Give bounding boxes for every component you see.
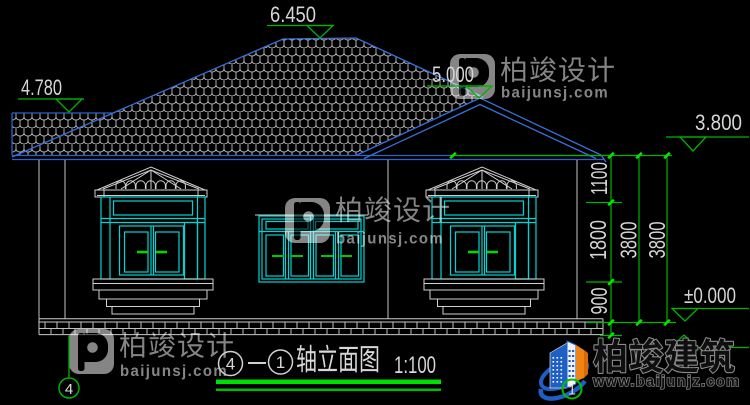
svg-text:±0.000: ±0.000 [684,283,736,308]
svg-text:6.450: 6.450 [270,2,316,27]
svg-text:4.780: 4.780 [21,75,62,100]
svg-text:3.800: 3.800 [695,110,742,135]
svg-text:1: 1 [568,382,576,398]
svg-text:3800: 3800 [616,222,642,259]
svg-text:baijunsj.com: baijunsj.com [336,231,444,248]
svg-text:1100: 1100 [586,162,612,195]
svg-text:1: 1 [276,353,285,372]
svg-text:1800: 1800 [585,220,611,260]
svg-text:3800: 3800 [644,222,670,259]
svg-text:4: 4 [226,355,235,374]
svg-text:900: 900 [586,288,612,315]
svg-text:5.000: 5.000 [432,62,474,87]
svg-text:www.baijunjz.com: www.baijunjz.com [592,374,741,390]
svg-text:4: 4 [65,381,73,398]
svg-text:baijunsj.com: baijunsj.com [501,85,609,102]
svg-text:1:100: 1:100 [394,352,436,379]
svg-text:baijunsj.com: baijunsj.com [120,363,228,380]
